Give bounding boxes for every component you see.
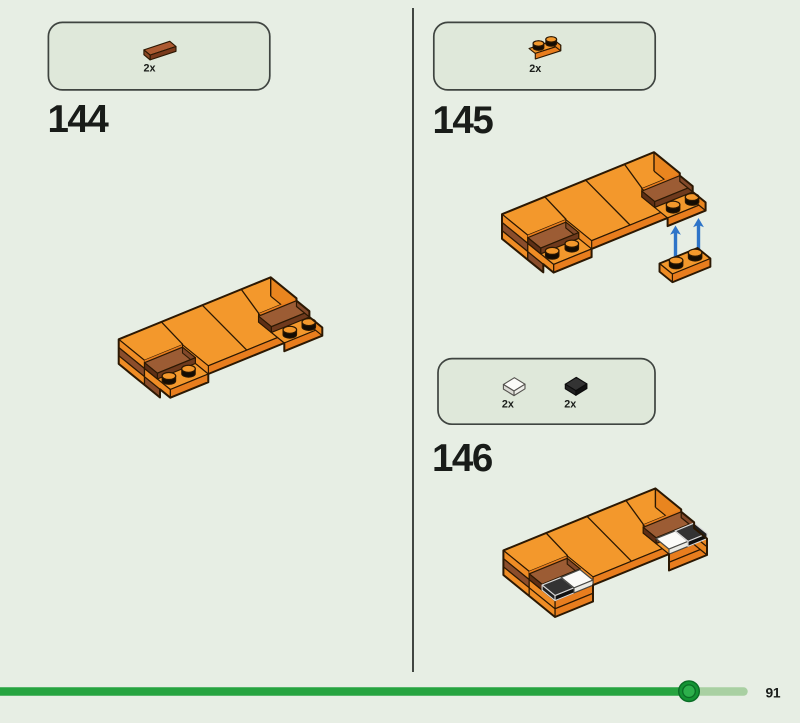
svg-text:144: 144 [48,98,110,141]
svg-text:2x: 2x [529,63,541,75]
svg-text:146: 146 [432,437,493,480]
svg-text:2x: 2x [144,63,156,75]
svg-text:145: 145 [433,99,494,142]
svg-text:91: 91 [766,686,781,701]
svg-text:2x: 2x [564,399,576,411]
svg-text:2x: 2x [502,399,514,411]
